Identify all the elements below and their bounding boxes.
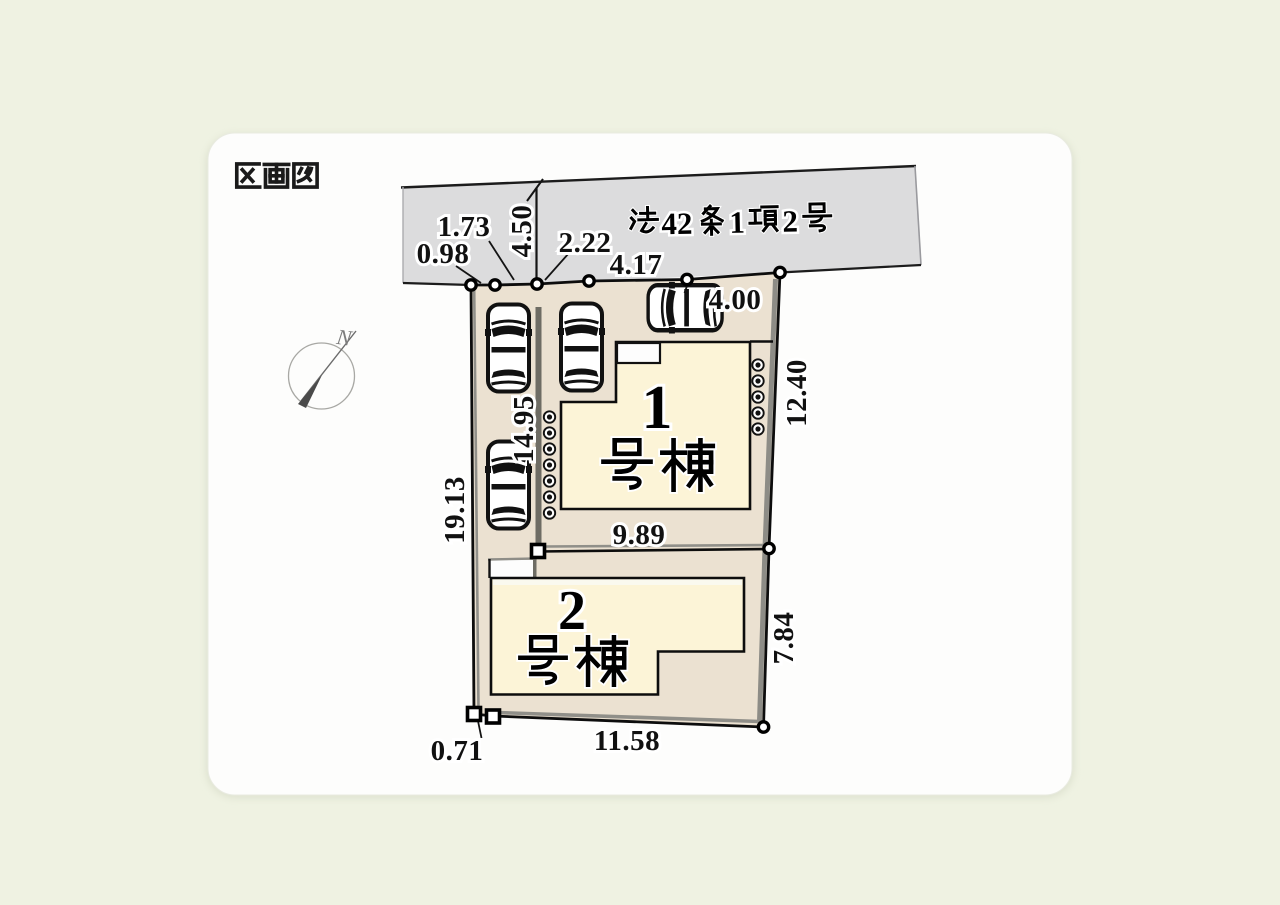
svg-text:12.40: 12.40 [781,359,813,427]
svg-text:9.89: 9.89 [613,519,666,551]
svg-text:1: 1 [642,374,673,442]
svg-text:4.50: 4.50 [506,205,538,258]
svg-text:42: 42 [661,206,693,242]
svg-text:2: 2 [782,203,798,238]
svg-text:1: 1 [729,205,745,240]
svg-text:4.00: 4.00 [709,284,762,316]
svg-text:14.95: 14.95 [508,395,540,463]
svg-text:2: 2 [558,580,586,642]
svg-text:0.71: 0.71 [431,735,484,767]
svg-text:11.58: 11.58 [594,725,660,757]
svg-text:1.73: 1.73 [438,211,491,243]
svg-text:2.22: 2.22 [559,227,612,259]
svg-text:4.17: 4.17 [610,249,663,281]
svg-text:19.13: 19.13 [439,476,471,544]
svg-text:7.84: 7.84 [768,612,800,665]
